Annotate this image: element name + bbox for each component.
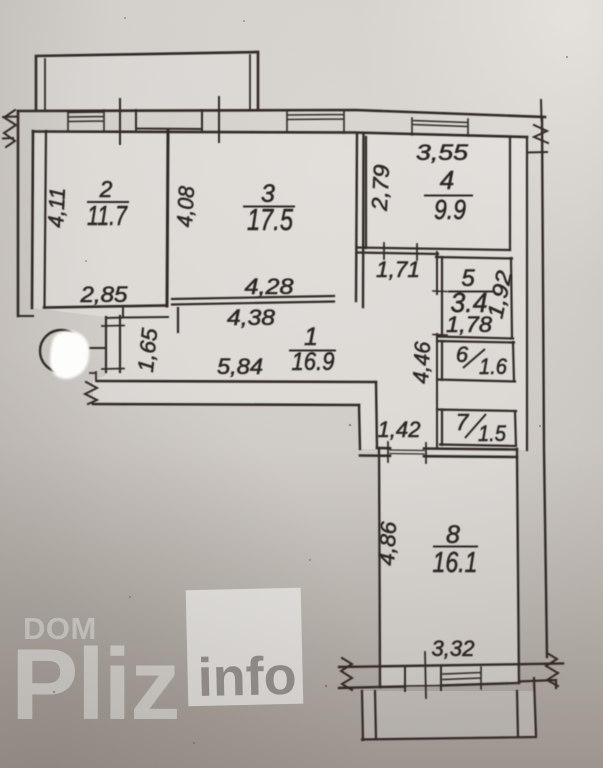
svg-text:3,32: 3,32 [432,636,475,661]
svg-text:2,85: 2,85 [79,282,128,307]
svg-text:1,42: 1,42 [378,417,421,442]
svg-text:4,08: 4,08 [172,185,199,228]
svg-text:4,11: 4,11 [43,187,70,228]
svg-text:16.9: 16.9 [292,348,335,376]
svg-text:4,86: 4,86 [374,520,401,566]
svg-text:4: 4 [440,165,454,195]
svg-text:2: 2 [99,176,113,202]
svg-text:info: info [197,646,297,708]
svg-text:2,79: 2,79 [367,164,394,212]
svg-text:3,55: 3,55 [416,140,469,165]
svg-text:4,46: 4,46 [408,340,435,384]
svg-text:5,84: 5,84 [217,354,263,379]
svg-text:Pliz: Pliz [11,629,179,741]
svg-text:11.7: 11.7 [87,200,128,231]
svg-text:9.9: 9.9 [434,194,466,225]
svg-text:1: 1 [304,323,318,351]
svg-text:8: 8 [446,521,460,549]
svg-text:4,38: 4,38 [227,305,276,330]
svg-text:16.1: 16.1 [433,547,478,579]
svg-text:1,65: 1,65 [133,326,163,373]
svg-text:4,28: 4,28 [245,274,295,299]
svg-text:7: 7 [456,409,470,435]
svg-text:6: 6 [456,342,469,367]
svg-text:1,78: 1,78 [446,312,493,337]
svg-text:1,71: 1,71 [376,257,420,282]
svg-text:1.6: 1.6 [479,354,508,379]
svg-text:17.5: 17.5 [247,202,294,237]
svg-text:1.5: 1.5 [478,421,507,446]
